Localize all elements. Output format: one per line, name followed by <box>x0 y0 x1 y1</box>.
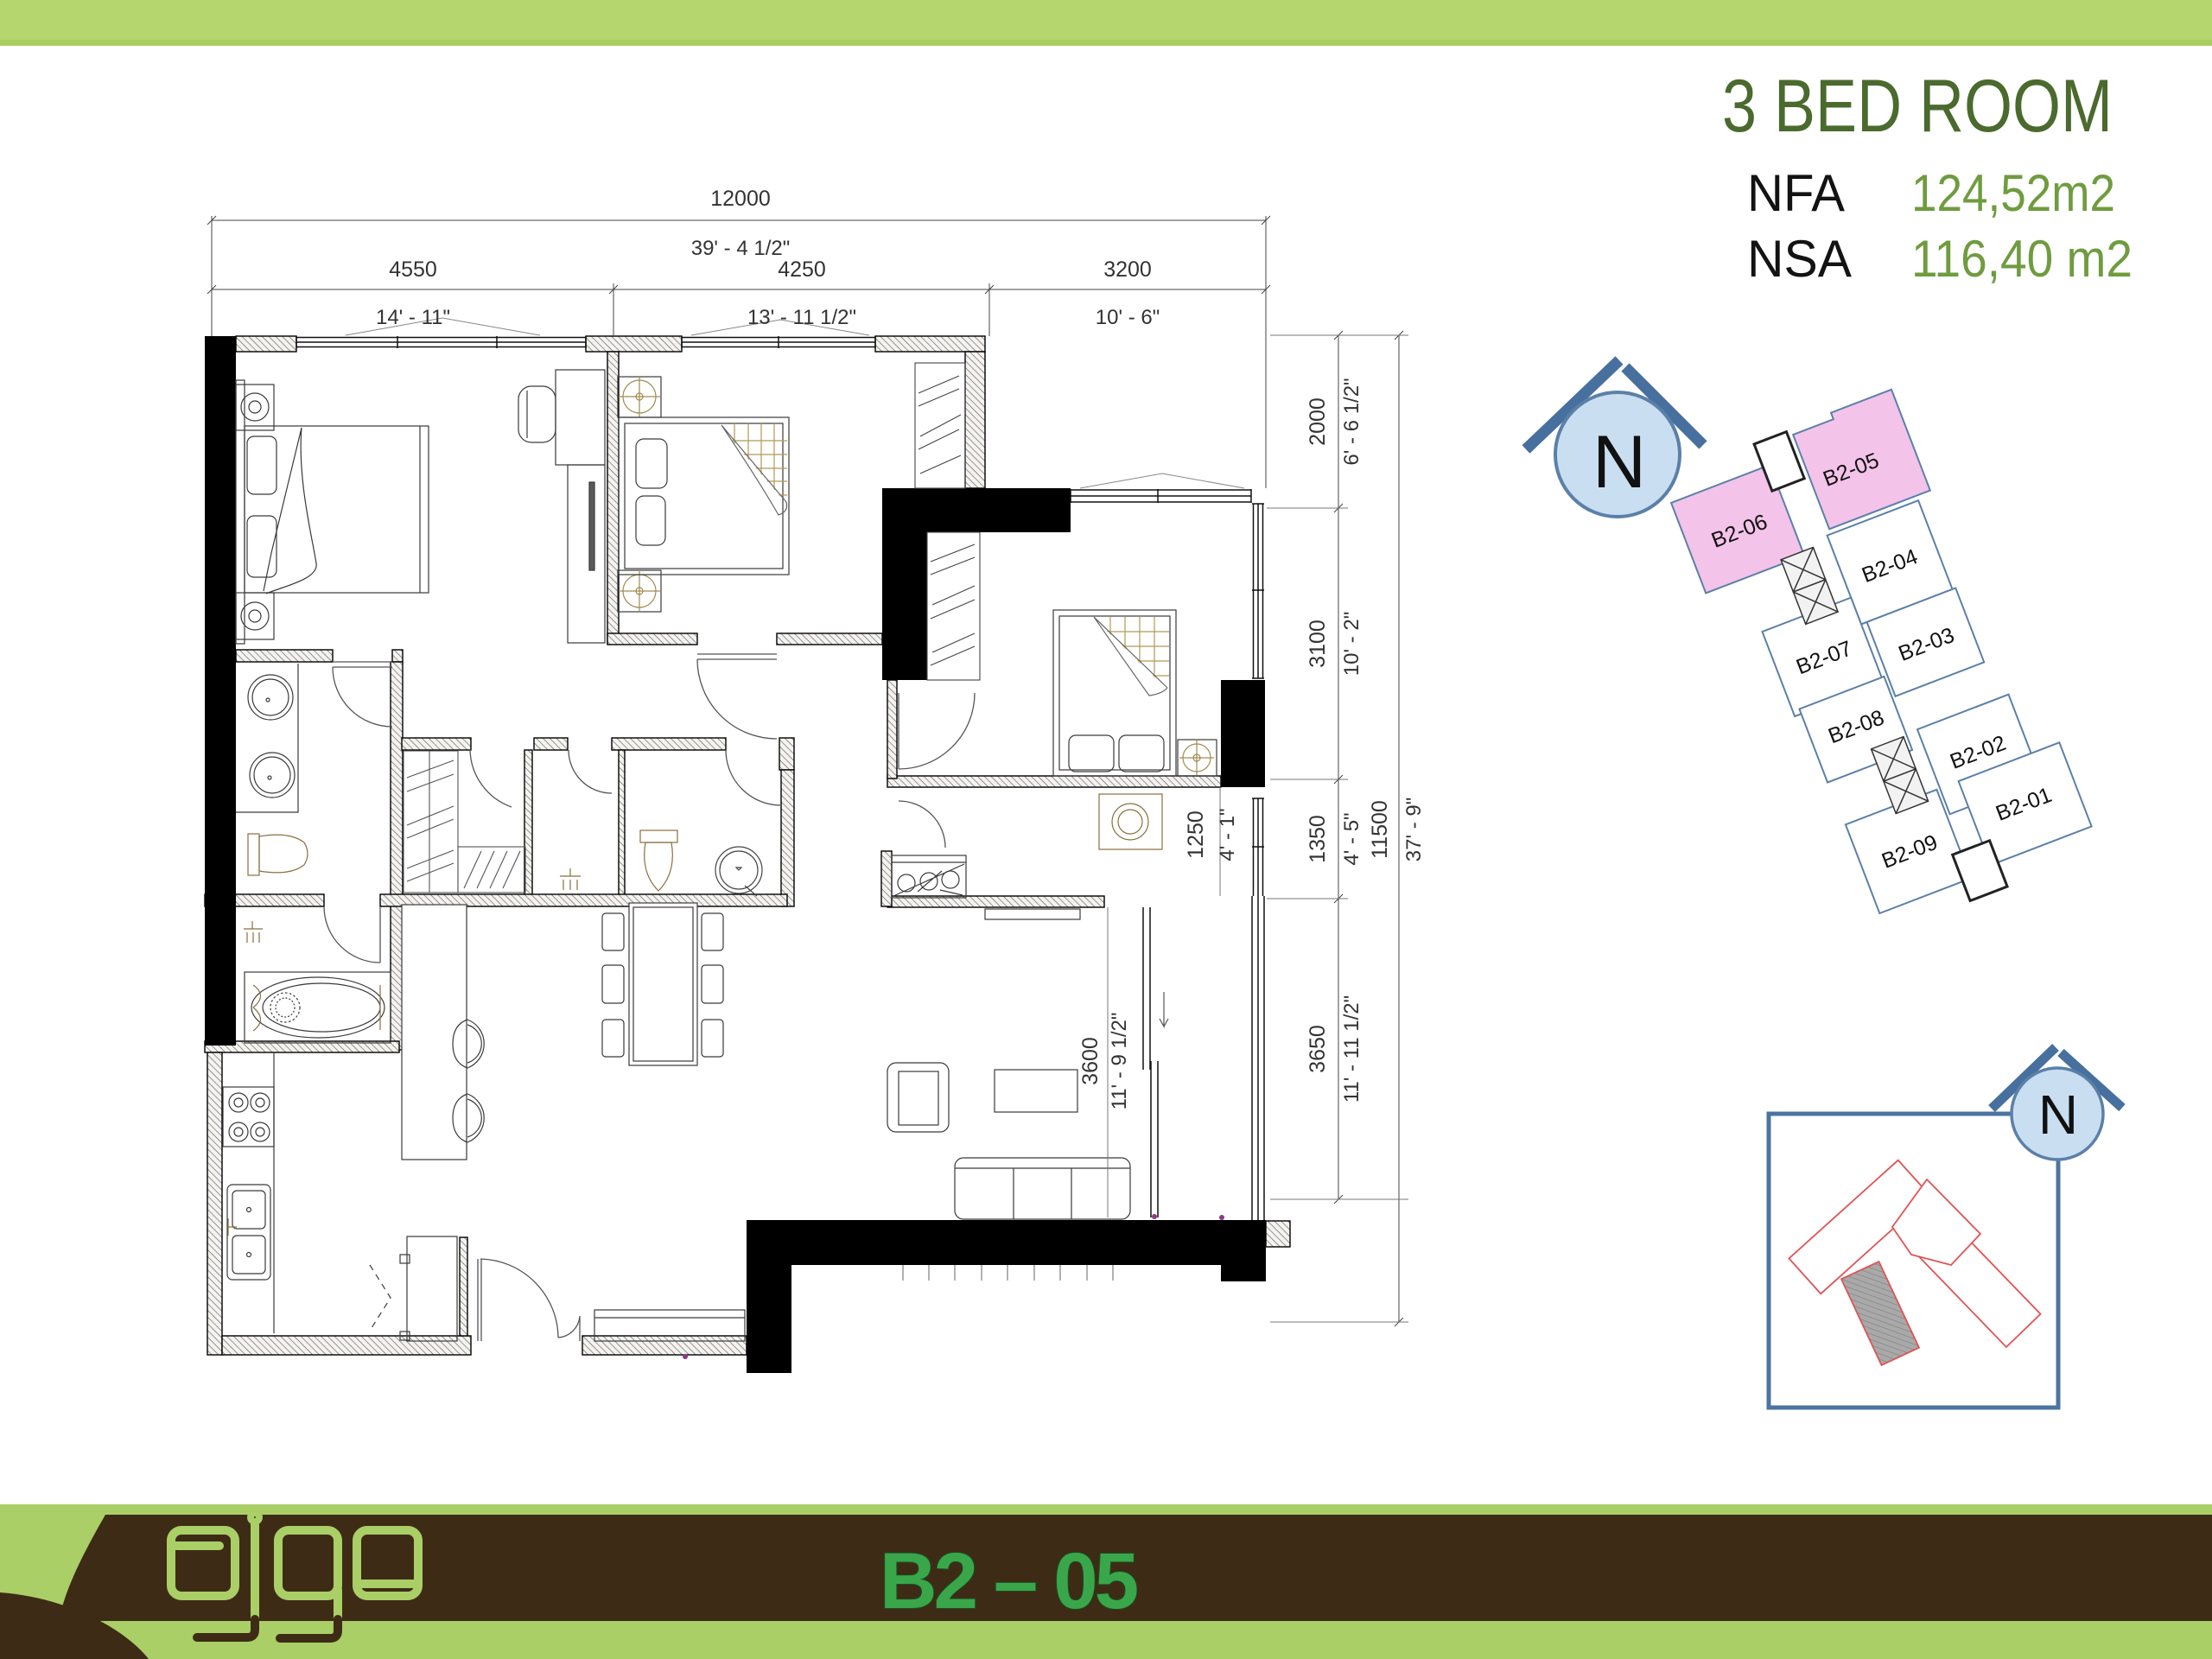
svg-text:3 BED ROOM: 3 BED ROOM <box>1722 65 2113 148</box>
svg-text:4250: 4250 <box>778 257 826 282</box>
svg-text:4550: 4550 <box>389 257 437 282</box>
svg-text:4' - 5": 4' - 5" <box>1340 812 1363 865</box>
svg-text:3600: 3600 <box>1078 1037 1103 1085</box>
svg-text:11' - 11 1/2": 11' - 11 1/2" <box>1340 995 1363 1103</box>
svg-text:10' - 2": 10' - 2" <box>1340 612 1363 676</box>
svg-text:14' - 11": 14' - 11" <box>376 306 450 329</box>
svg-text:NSA: NSA <box>1747 230 1852 288</box>
svg-text:N: N <box>1592 421 1646 504</box>
svg-text:3100: 3100 <box>1306 620 1330 668</box>
svg-text:37' - 9": 37' - 9" <box>1402 798 1426 861</box>
svg-text:124,52m2: 124,52m2 <box>1911 164 2115 222</box>
svg-text:N: N <box>2038 1084 2078 1146</box>
svg-text:39' - 4 1/2": 39' - 4 1/2" <box>691 237 791 260</box>
svg-text:11' - 9 1/2": 11' - 9 1/2" <box>1108 1013 1131 1110</box>
svg-text:NFA: NFA <box>1747 164 1845 222</box>
svg-text:12000: 12000 <box>710 187 771 211</box>
svg-text:116,40 m2: 116,40 m2 <box>1911 230 2133 288</box>
svg-text:B2 – 05: B2 – 05 <box>880 1537 1139 1625</box>
svg-text:1250: 1250 <box>1184 810 1208 859</box>
svg-text:3650: 3650 <box>1306 1025 1330 1073</box>
svg-text:4' - 1": 4' - 1" <box>1216 808 1239 861</box>
svg-text:10' - 6": 10' - 6" <box>1096 306 1160 329</box>
svg-text:2000: 2000 <box>1306 397 1330 446</box>
svg-text:1350: 1350 <box>1306 815 1330 863</box>
svg-text:13' - 11 1/2": 13' - 11 1/2" <box>747 306 856 329</box>
svg-text:11500: 11500 <box>1368 800 1392 859</box>
svg-text:6' - 6 1/2": 6' - 6 1/2" <box>1340 378 1363 465</box>
svg-text:3200: 3200 <box>1103 257 1152 282</box>
